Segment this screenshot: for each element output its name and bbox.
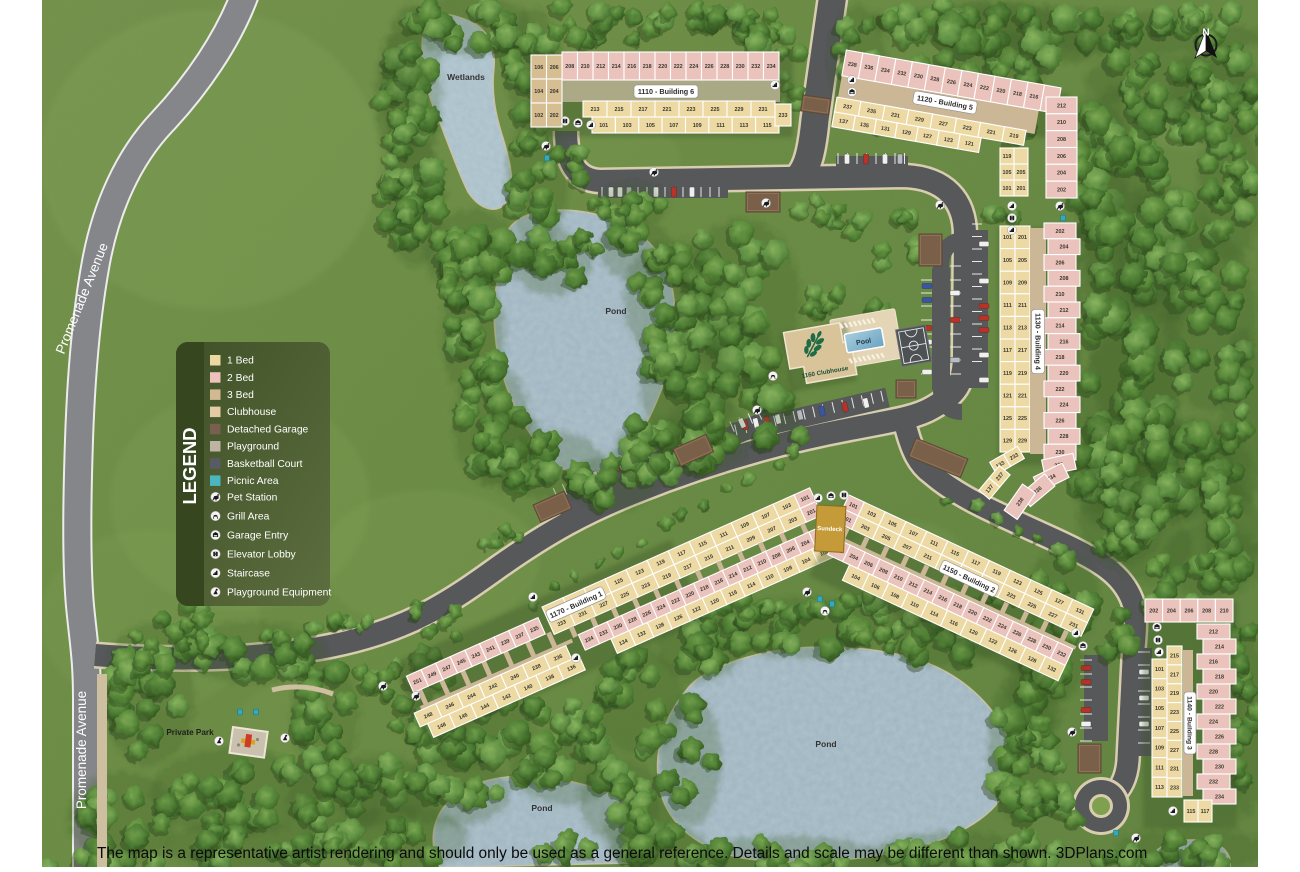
svg-text:210: 210 — [1057, 120, 1066, 126]
svg-text:The map is a representative ar: The map is a representative artist rende… — [97, 845, 1147, 862]
svg-text:107: 107 — [1155, 726, 1164, 732]
svg-text:105: 105 — [1155, 706, 1164, 712]
svg-text:212: 212 — [1060, 308, 1069, 314]
svg-text:218: 218 — [1215, 674, 1224, 680]
svg-text:102: 102 — [534, 113, 543, 119]
svg-text:119: 119 — [1003, 371, 1012, 377]
svg-text:220: 220 — [658, 64, 667, 70]
svg-text:222: 222 — [1215, 704, 1224, 710]
svg-text:1130 - Building 4: 1130 - Building 4 — [1033, 313, 1042, 370]
svg-text:1 Bed: 1 Bed — [227, 356, 254, 367]
svg-text:228: 228 — [1209, 749, 1218, 755]
svg-text:109: 109 — [1003, 280, 1012, 286]
svg-text:Elevator Lobby: Elevator Lobby — [227, 550, 297, 561]
svg-text:204: 204 — [1060, 245, 1069, 251]
svg-text:121: 121 — [1003, 393, 1012, 399]
svg-text:Detached Garage: Detached Garage — [227, 424, 309, 435]
svg-text:221: 221 — [1018, 393, 1027, 399]
svg-text:220: 220 — [1209, 689, 1218, 695]
svg-text:231: 231 — [759, 107, 768, 113]
svg-text:202: 202 — [1057, 188, 1066, 194]
svg-text:Pond: Pond — [815, 739, 836, 749]
svg-text:211: 211 — [1018, 303, 1027, 309]
svg-text:Basketball Court: Basketball Court — [227, 459, 303, 470]
svg-text:222: 222 — [1056, 387, 1065, 393]
svg-text:Wetlands: Wetlands — [447, 72, 485, 82]
svg-text:224: 224 — [689, 64, 698, 70]
svg-text:216: 216 — [1209, 659, 1218, 665]
svg-text:111: 111 — [1003, 303, 1011, 309]
svg-text:Pond: Pond — [605, 306, 626, 316]
svg-text:Garage Entry: Garage Entry — [227, 531, 289, 542]
svg-text:213: 213 — [591, 107, 600, 113]
svg-text:1140 - Building 3: 1140 - Building 3 — [1186, 696, 1193, 750]
svg-text:119: 119 — [1003, 154, 1012, 160]
svg-text:117: 117 — [1003, 348, 1012, 354]
svg-text:208: 208 — [1057, 137, 1066, 143]
svg-text:220: 220 — [1060, 371, 1069, 377]
svg-text:Playground: Playground — [227, 442, 279, 453]
svg-text:111: 111 — [1155, 765, 1163, 771]
svg-text:221: 221 — [663, 107, 672, 113]
svg-text:Staircase: Staircase — [227, 569, 270, 580]
svg-text:229: 229 — [1018, 439, 1027, 445]
svg-text:230: 230 — [1215, 764, 1224, 770]
svg-text:230: 230 — [736, 64, 745, 70]
svg-text:233: 233 — [1170, 786, 1179, 792]
svg-text:1110 - Building 6: 1110 - Building 6 — [638, 87, 694, 96]
svg-text:202: 202 — [1056, 229, 1065, 235]
svg-text:113: 113 — [740, 123, 749, 129]
svg-text:LEGEND: LEGEND — [179, 427, 200, 504]
svg-text:233: 233 — [779, 113, 788, 119]
svg-text:218: 218 — [1056, 355, 1065, 361]
svg-text:3 Bed: 3 Bed — [227, 390, 254, 401]
svg-text:202: 202 — [1149, 608, 1158, 614]
svg-text:109: 109 — [693, 123, 702, 129]
svg-text:214: 214 — [1215, 644, 1224, 650]
svg-text:226: 226 — [1056, 418, 1065, 424]
svg-text:106: 106 — [534, 65, 543, 71]
svg-text:216: 216 — [1060, 339, 1069, 345]
svg-text:215: 215 — [615, 107, 624, 113]
svg-text:212: 212 — [596, 64, 605, 70]
svg-text:115: 115 — [763, 123, 772, 129]
svg-text:225: 225 — [1018, 416, 1027, 422]
svg-text:229: 229 — [735, 107, 744, 113]
svg-text:115: 115 — [1187, 809, 1196, 815]
svg-text:215: 215 — [1170, 653, 1179, 659]
svg-text:113: 113 — [1003, 326, 1012, 332]
svg-text:101: 101 — [1003, 186, 1012, 192]
svg-text:224: 224 — [1209, 719, 1218, 725]
svg-text:223: 223 — [687, 107, 696, 113]
svg-text:234: 234 — [767, 64, 776, 70]
svg-text:204: 204 — [1167, 608, 1176, 614]
svg-text:105: 105 — [646, 123, 655, 129]
svg-text:105: 105 — [1003, 258, 1012, 264]
svg-text:226: 226 — [1215, 734, 1224, 740]
svg-text:109: 109 — [1155, 746, 1164, 752]
svg-text:N: N — [1202, 28, 1209, 39]
svg-text:113: 113 — [1155, 785, 1164, 791]
svg-text:208: 208 — [1202, 608, 1211, 614]
svg-text:107: 107 — [669, 123, 678, 129]
svg-text:228: 228 — [720, 64, 729, 70]
svg-text:206: 206 — [1056, 260, 1065, 266]
svg-text:Pet Station: Pet Station — [227, 493, 278, 504]
svg-text:Clubhouse: Clubhouse — [227, 407, 277, 418]
svg-text:117: 117 — [1201, 809, 1210, 815]
svg-text:226: 226 — [705, 64, 714, 70]
svg-text:234: 234 — [1215, 794, 1224, 800]
svg-text:205: 205 — [1018, 258, 1027, 264]
svg-text:208: 208 — [565, 64, 574, 70]
svg-text:224: 224 — [1060, 403, 1069, 409]
svg-text:209: 209 — [1018, 280, 1027, 286]
svg-text:216: 216 — [627, 64, 636, 70]
svg-text:206: 206 — [1057, 154, 1066, 160]
svg-text:105: 105 — [1003, 170, 1012, 176]
svg-text:223: 223 — [1170, 710, 1179, 716]
svg-text:Picnic Area: Picnic Area — [227, 476, 279, 487]
svg-text:217: 217 — [1170, 672, 1179, 678]
svg-text:228: 228 — [1060, 434, 1069, 440]
svg-text:104: 104 — [534, 89, 543, 95]
svg-text:214: 214 — [612, 64, 621, 70]
svg-text:202: 202 — [550, 113, 559, 119]
svg-text:210: 210 — [1056, 292, 1065, 298]
svg-text:227: 227 — [1170, 748, 1179, 754]
svg-text:222: 222 — [674, 64, 683, 70]
svg-text:101: 101 — [1003, 235, 1012, 241]
svg-text:210: 210 — [1220, 608, 1229, 614]
svg-text:204: 204 — [550, 89, 559, 95]
svg-text:213: 213 — [1018, 326, 1027, 332]
svg-text:218: 218 — [643, 64, 652, 70]
svg-text:101: 101 — [599, 123, 608, 129]
svg-text:103: 103 — [623, 123, 632, 129]
svg-text:101: 101 — [1155, 667, 1164, 673]
svg-text:225: 225 — [1170, 729, 1179, 735]
svg-text:201: 201 — [1017, 186, 1026, 192]
svg-text:206: 206 — [1185, 608, 1194, 614]
svg-text:205: 205 — [1017, 170, 1026, 176]
svg-text:225: 225 — [711, 107, 720, 113]
svg-text:232: 232 — [751, 64, 760, 70]
svg-text:111: 111 — [716, 123, 724, 129]
svg-text:212: 212 — [1057, 103, 1066, 109]
svg-text:208: 208 — [1060, 276, 1069, 282]
svg-text:219: 219 — [1170, 691, 1179, 697]
svg-text:212: 212 — [1209, 629, 1218, 635]
svg-text:Promenade Avenue: Promenade Avenue — [74, 691, 89, 809]
svg-text:Playground Equipment: Playground Equipment — [227, 588, 331, 599]
svg-text:201: 201 — [1018, 235, 1027, 241]
svg-text:231: 231 — [1170, 767, 1179, 773]
svg-text:129: 129 — [1003, 439, 1012, 445]
svg-text:232: 232 — [1209, 779, 1218, 785]
svg-text:204: 204 — [1057, 171, 1066, 177]
svg-text:103: 103 — [1155, 687, 1164, 693]
svg-text:Grill Area: Grill Area — [227, 512, 270, 523]
svg-text:206: 206 — [550, 65, 559, 71]
svg-text:214: 214 — [1056, 324, 1065, 330]
svg-text:210: 210 — [581, 64, 590, 70]
svg-text:Pond: Pond — [531, 803, 552, 813]
svg-text:217: 217 — [639, 107, 648, 113]
svg-text:Private Park: Private Park — [166, 728, 214, 737]
svg-text:2 Bed: 2 Bed — [227, 373, 254, 384]
svg-text:125: 125 — [1003, 416, 1012, 422]
svg-text:219: 219 — [1018, 371, 1027, 377]
svg-text:217: 217 — [1018, 348, 1027, 354]
